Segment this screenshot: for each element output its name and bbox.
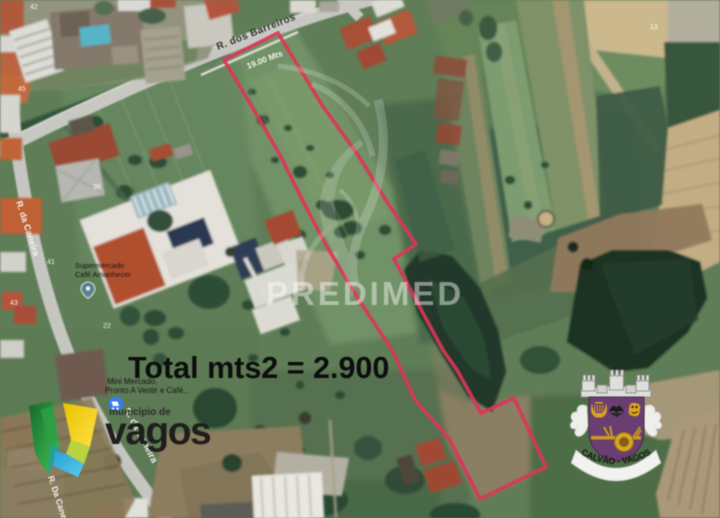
svg-text:Total mts2 = 2.900: Total mts2 = 2.900 bbox=[128, 351, 389, 385]
svg-text:PREDIMED: PREDIMED bbox=[266, 275, 464, 312]
svg-text:Café Amanhecer: Café Amanhecer bbox=[75, 270, 131, 279]
svg-text:42: 42 bbox=[30, 4, 38, 11]
svg-text:Pronto A Vestir e Café...: Pronto A Vestir e Café... bbox=[105, 386, 190, 395]
svg-text:22: 22 bbox=[103, 323, 111, 330]
svg-text:Supermercado: Supermercado bbox=[75, 261, 124, 270]
svg-text:vagos: vagos bbox=[105, 410, 211, 453]
svg-text:13: 13 bbox=[650, 24, 658, 31]
svg-text:45: 45 bbox=[18, 86, 26, 93]
svg-text:43: 43 bbox=[10, 300, 18, 307]
svg-text:36: 36 bbox=[93, 184, 101, 191]
svg-text:41: 41 bbox=[47, 259, 55, 266]
